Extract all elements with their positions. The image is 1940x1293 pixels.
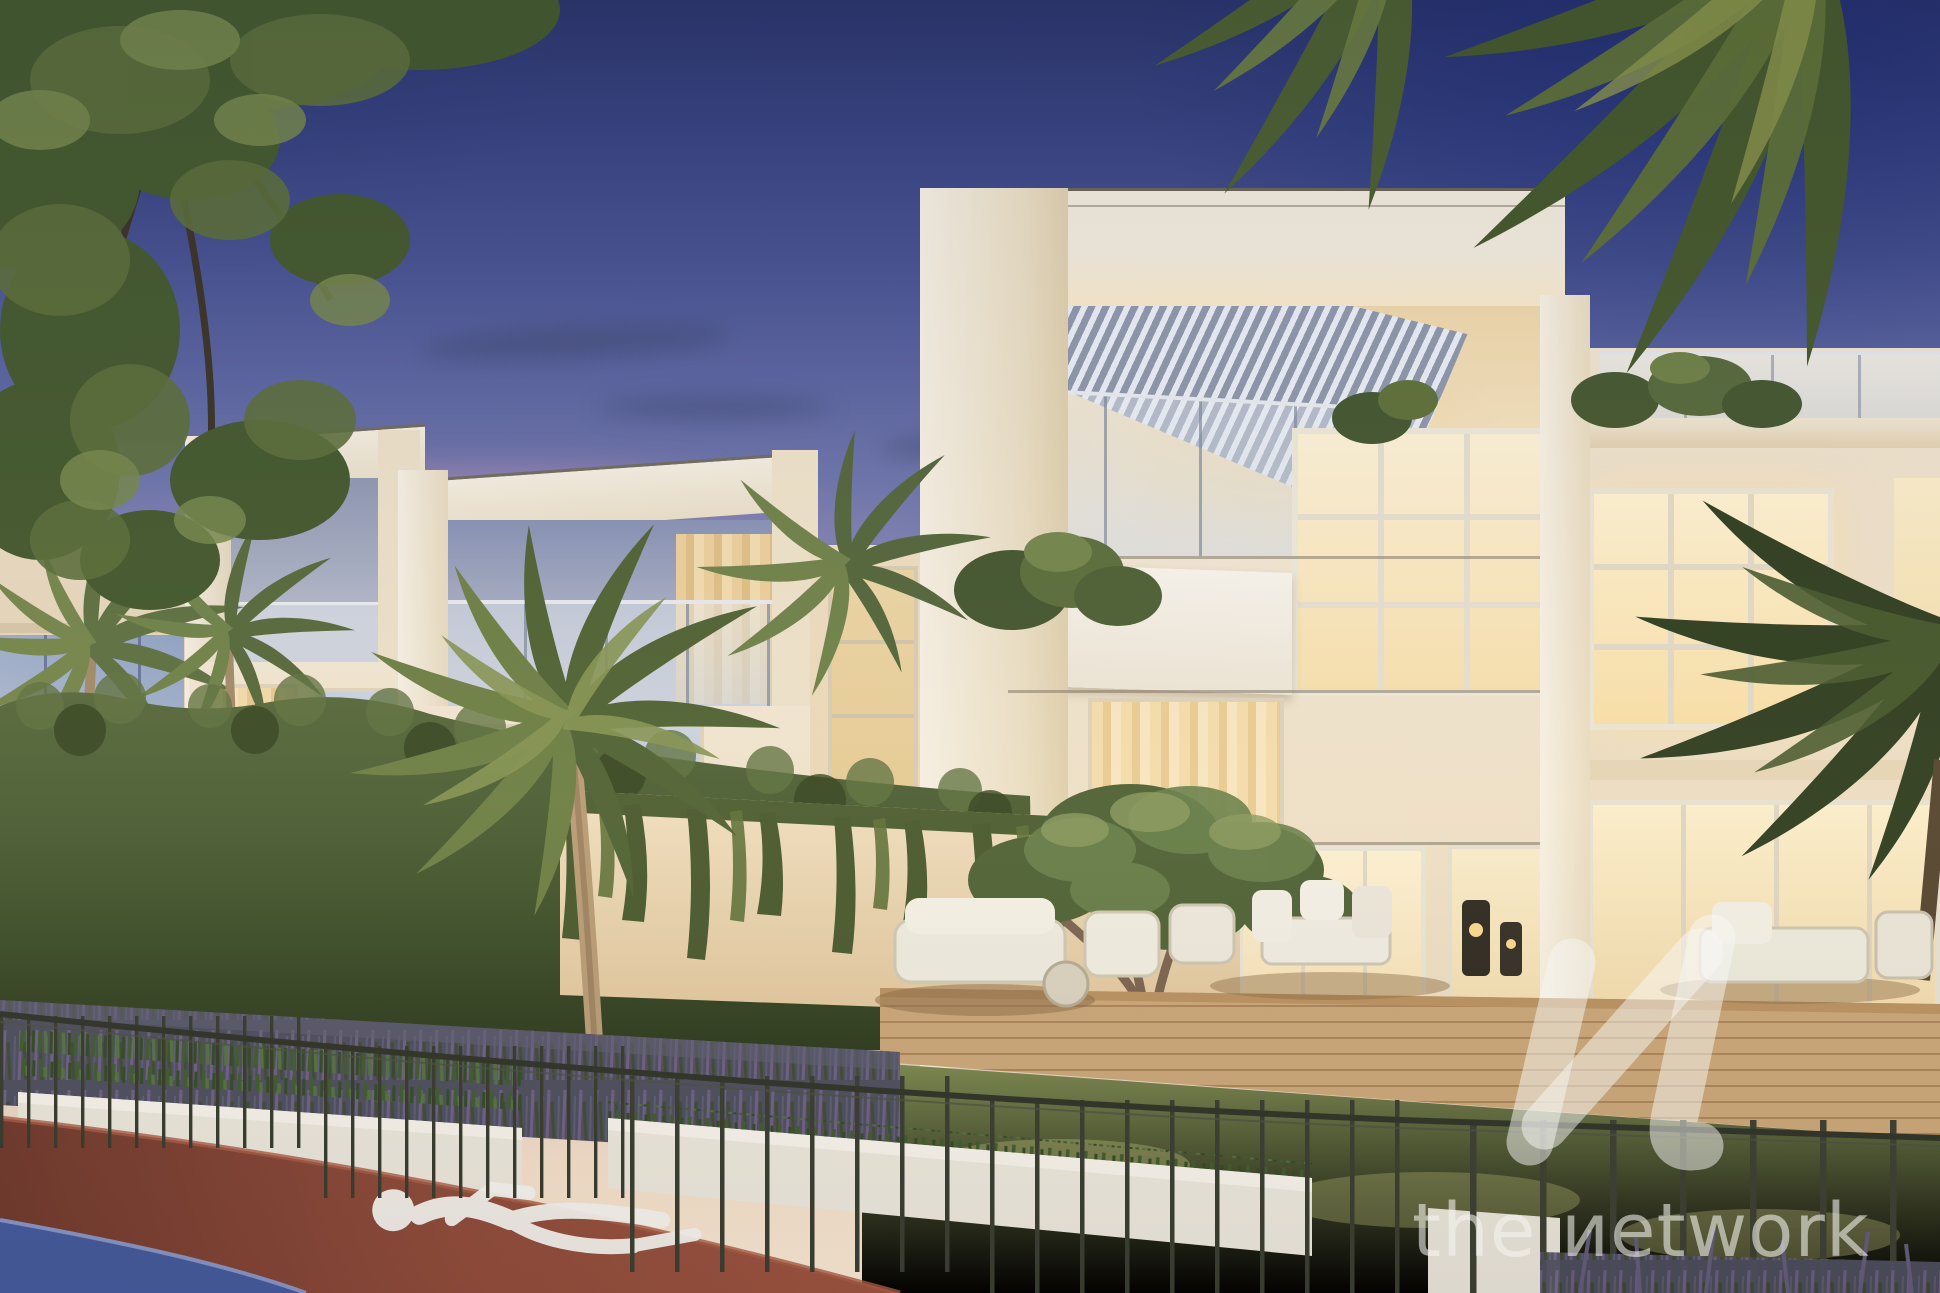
- network-logo-icon: [0, 0, 1940, 1293]
- watermark-text: the иetwork: [1412, 1188, 1932, 1274]
- architectural-render: the иetwork: [0, 0, 1940, 1293]
